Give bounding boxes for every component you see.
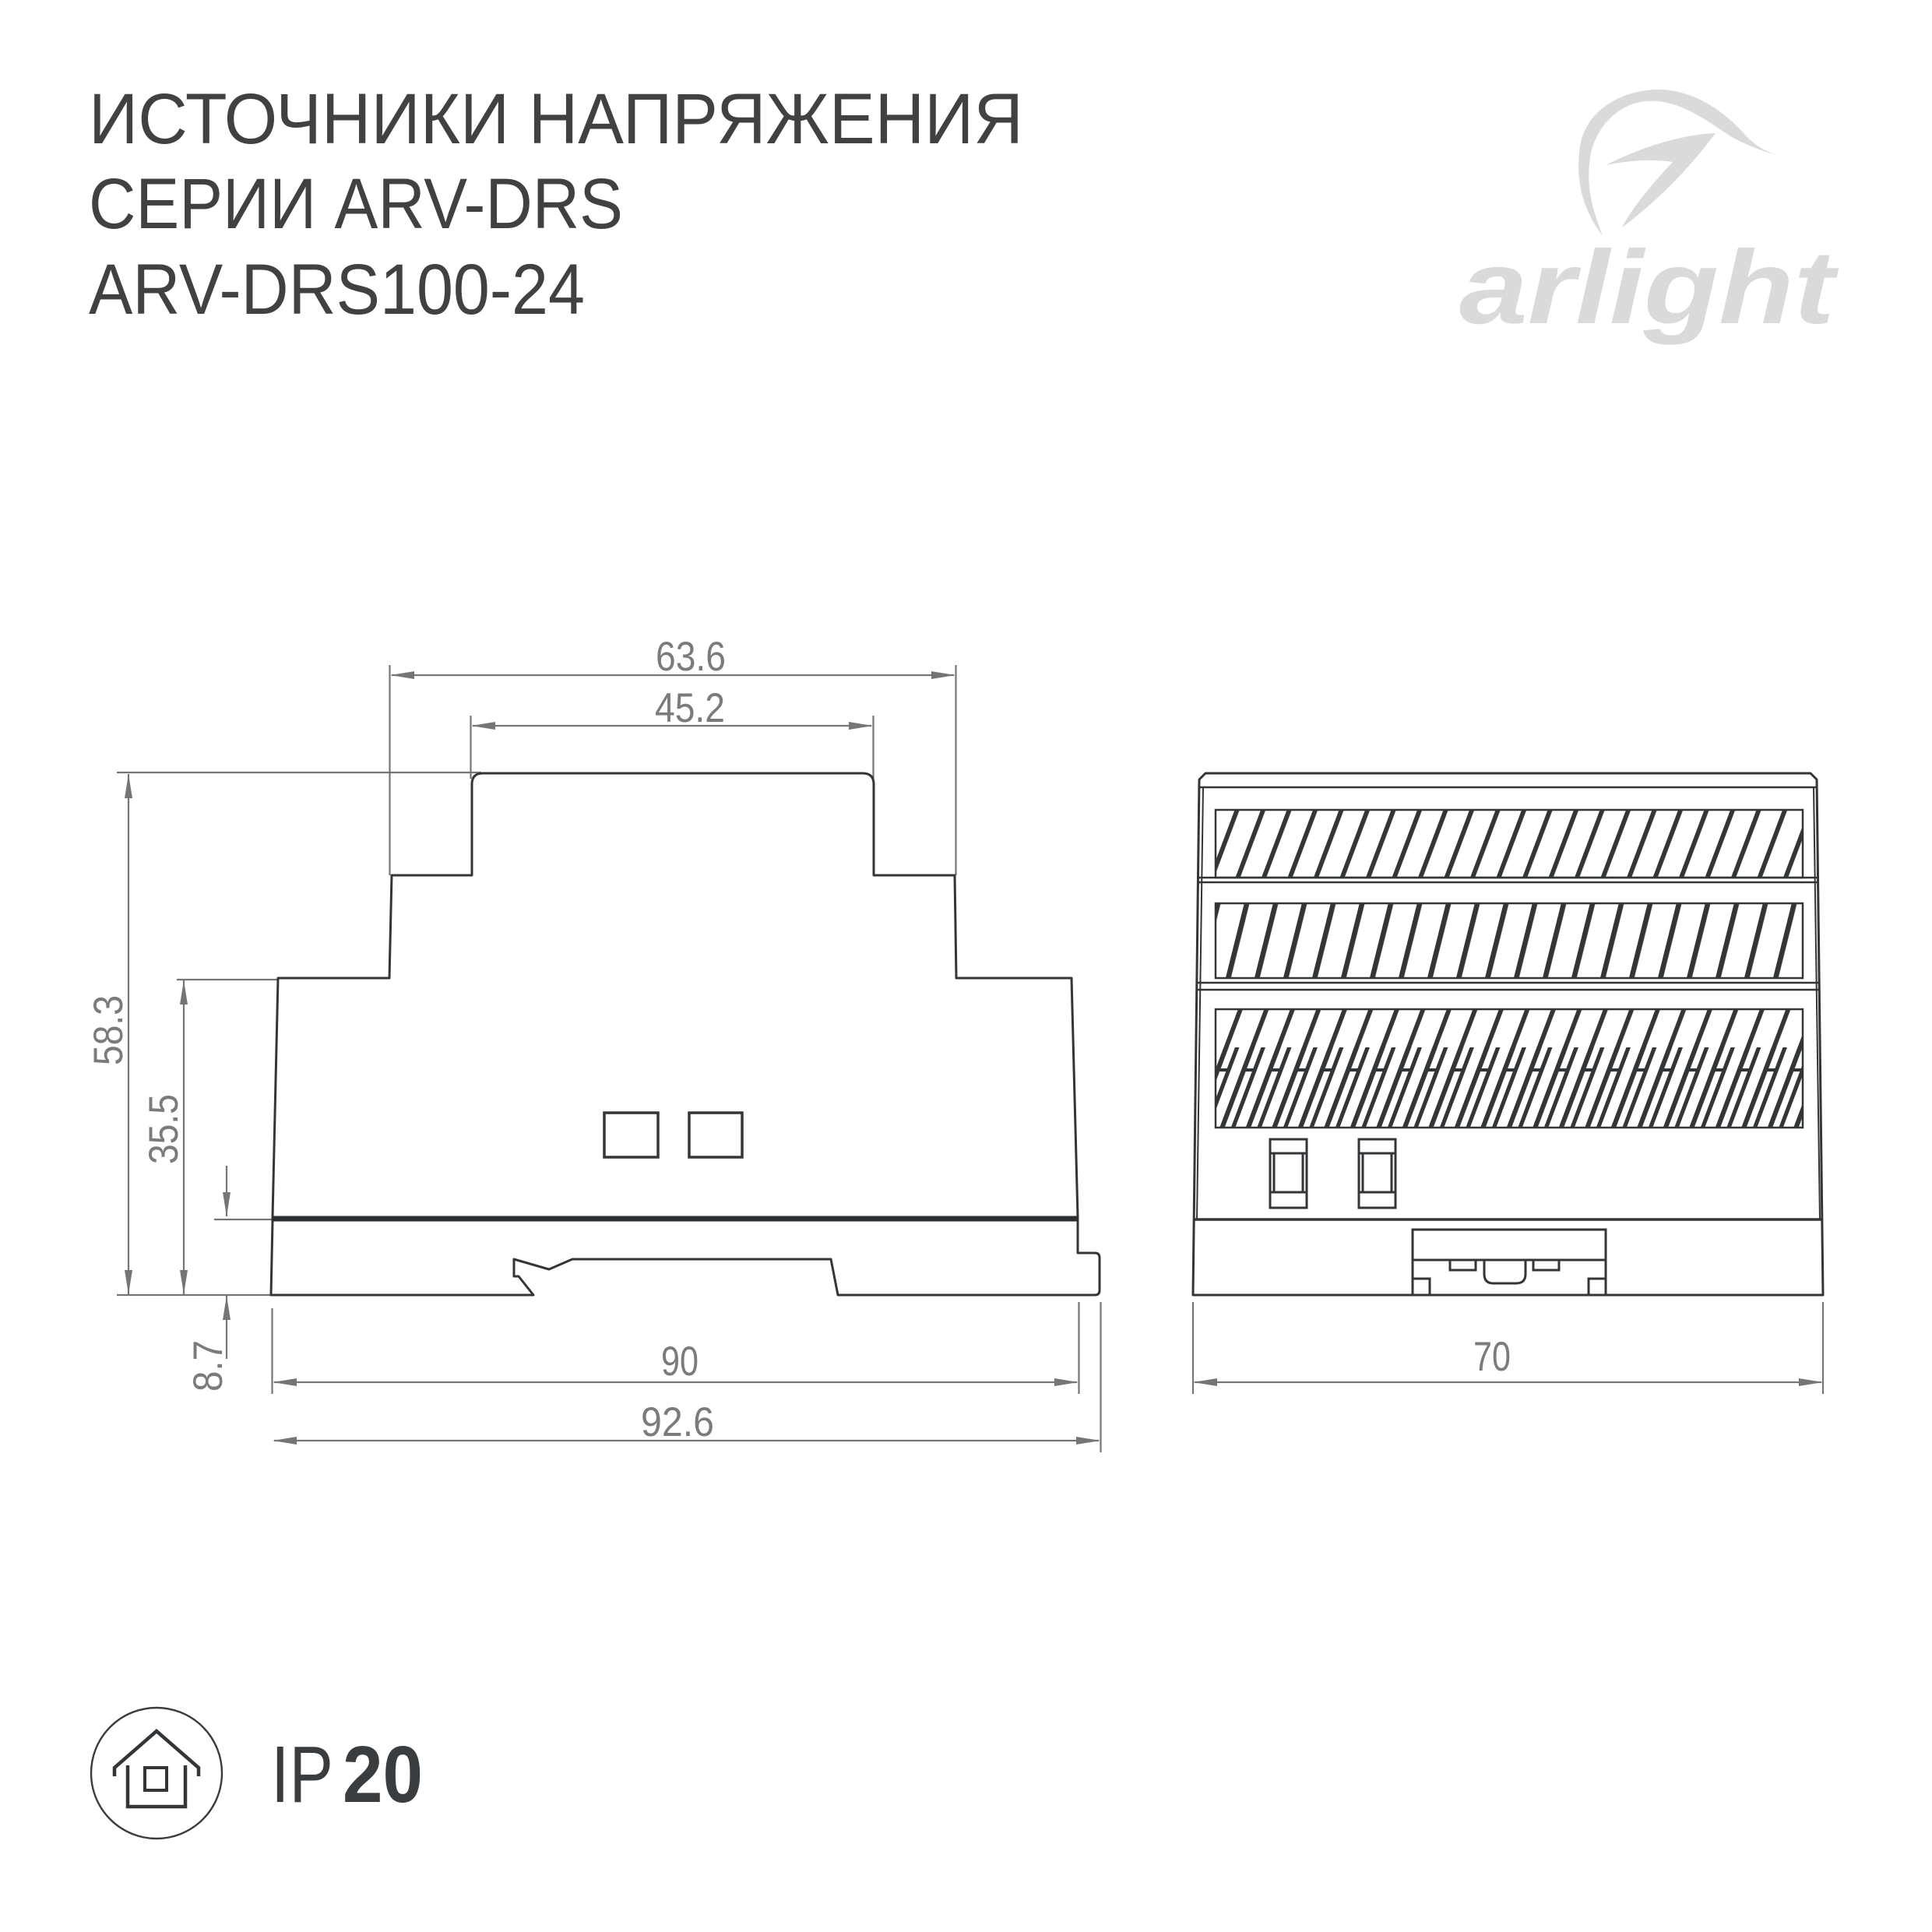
svg-text:ИСТОЧНИКИ НАПРЯЖЕНИЯ: ИСТОЧНИКИ НАПРЯЖЕНИЯ [89,79,1023,159]
svg-text:СЕРИИ ARV-DRS: СЕРИИ ARV-DRS [89,164,623,244]
svg-text:92.6: 92.6 [641,1399,714,1445]
svg-text:63.6: 63.6 [656,634,726,680]
svg-text:arlight: arlight [1459,230,1839,346]
svg-text:8.7: 8.7 [185,1340,231,1392]
svg-text:45.2: 45.2 [655,685,725,731]
svg-text:70: 70 [1473,1334,1511,1380]
svg-text:ARV-DRS100-24: ARV-DRS100-24 [89,250,585,329]
svg-text:58.3: 58.3 [86,995,132,1065]
svg-text:90: 90 [661,1339,699,1385]
svg-text:35.5: 35.5 [141,1094,187,1164]
svg-text:20: 20 [343,1730,423,1819]
svg-text:IP: IP [271,1730,333,1819]
